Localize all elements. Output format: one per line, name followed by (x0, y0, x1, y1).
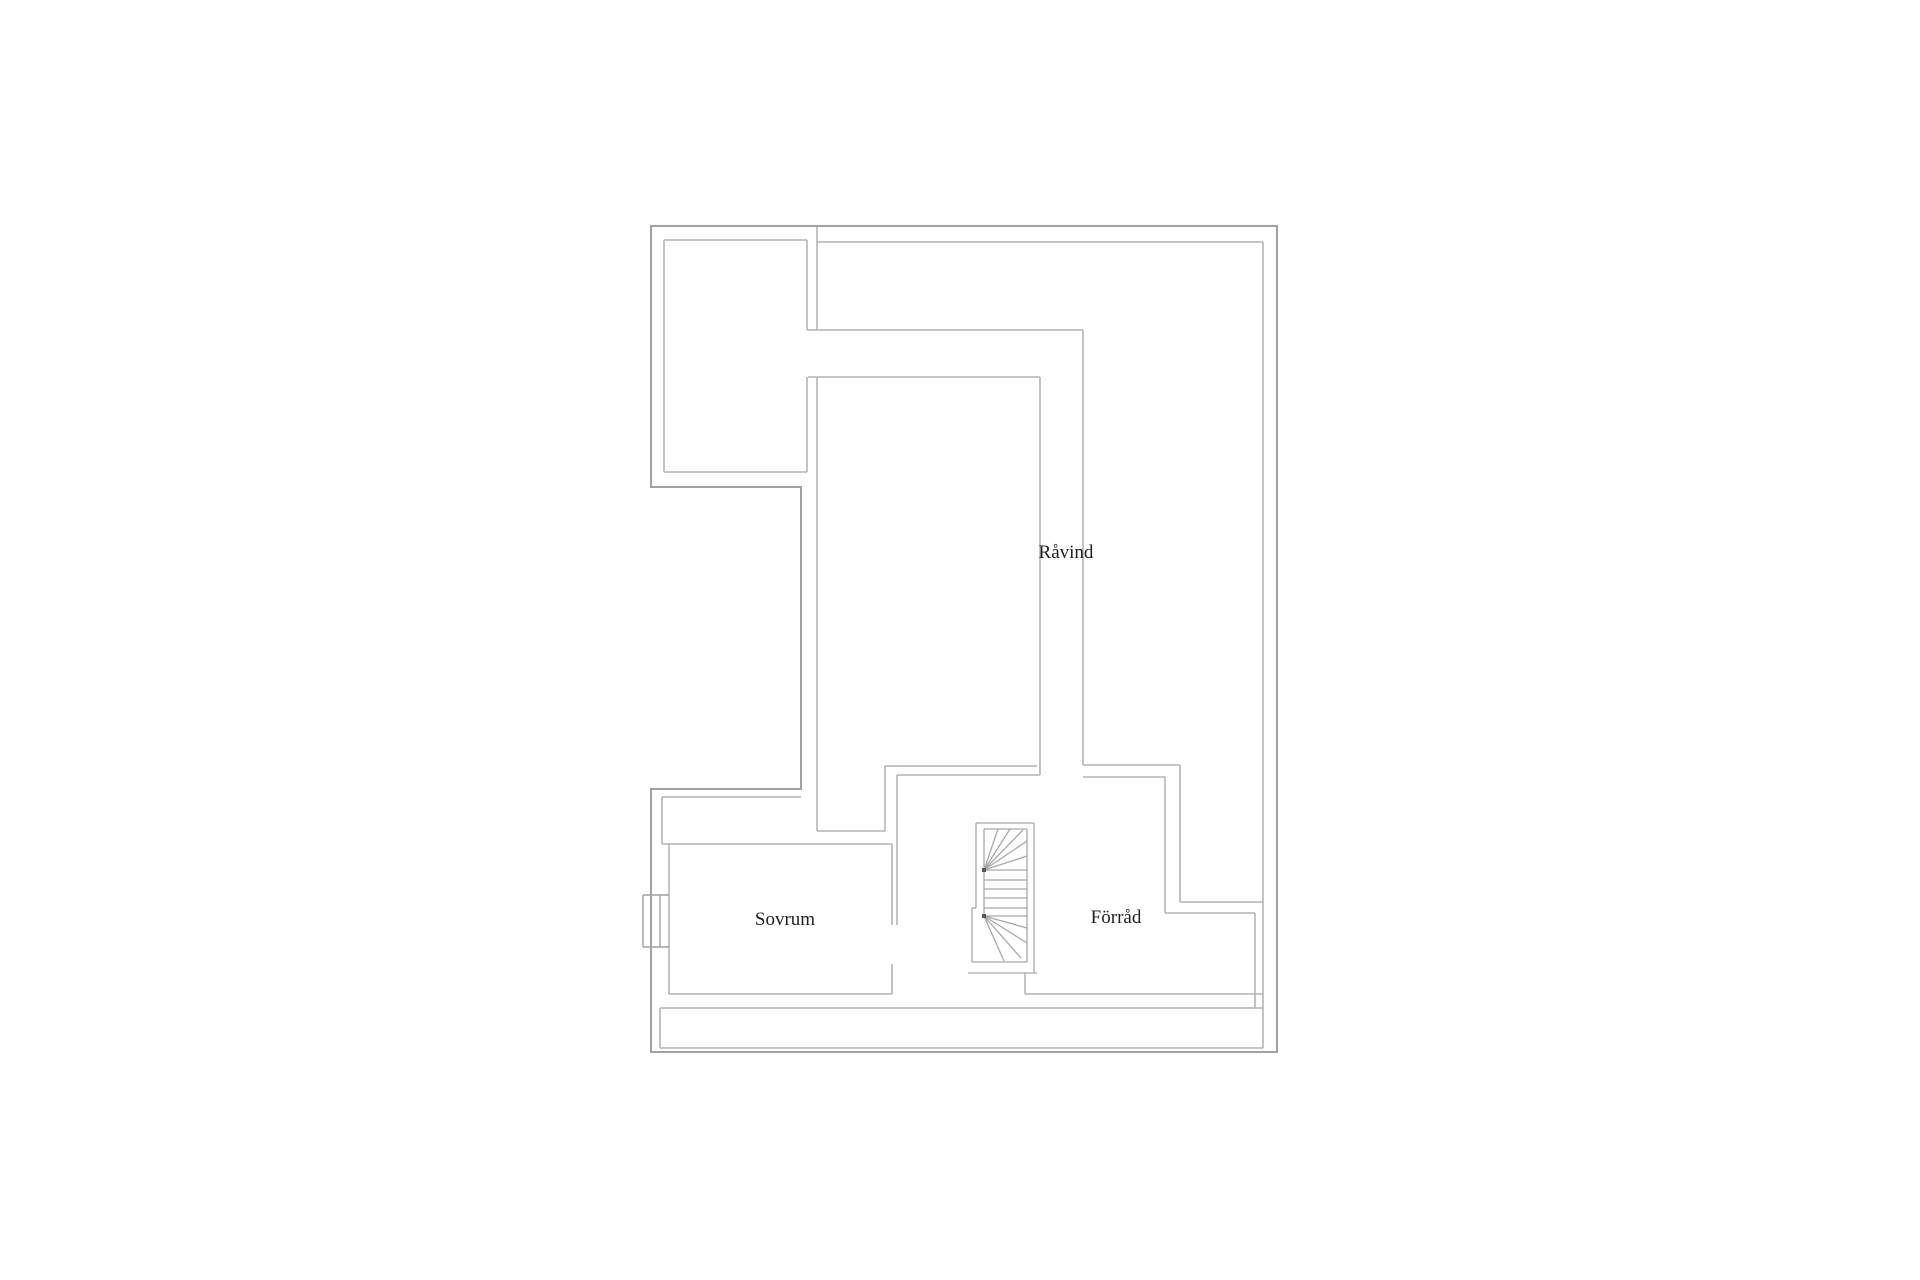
stair-line (984, 916, 1021, 958)
stair-winder-hub (982, 914, 986, 918)
room-label-ravind: Råvind (1039, 542, 1094, 563)
room-label-sovrum: Sovrum (755, 909, 815, 930)
stair-line (984, 916, 1027, 928)
stair-line (984, 829, 998, 870)
stair-line (984, 829, 1010, 870)
stair-winder-hub (982, 868, 986, 872)
floor-plan-page: RåvindSovrumFörråd (0, 0, 1920, 1280)
floor-plan-drawing: RåvindSovrumFörråd (0, 0, 1920, 1280)
room-label-forrad: Förråd (1091, 907, 1142, 928)
stair-line (984, 841, 1027, 870)
outer-boundary (651, 226, 1277, 1052)
